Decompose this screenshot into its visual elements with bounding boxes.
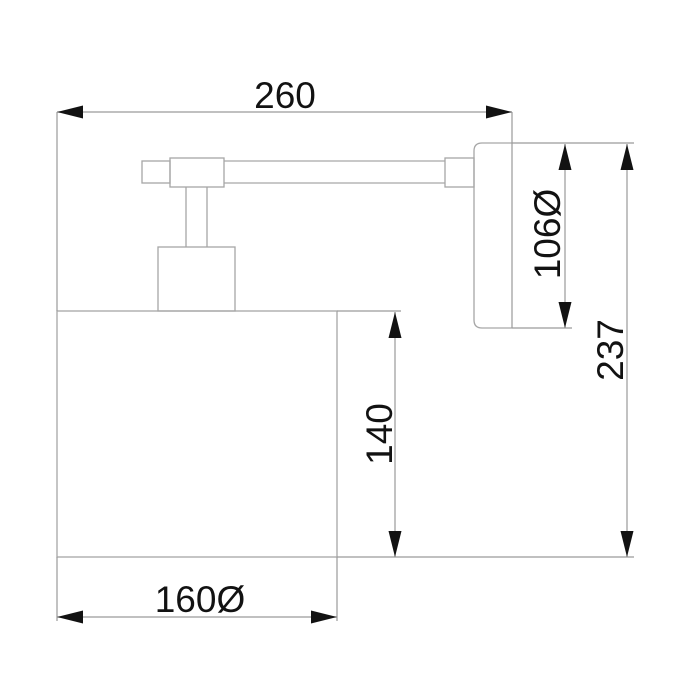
backplate-outline [474, 143, 512, 328]
shade-outline [57, 311, 337, 557]
arrowhead-down-icon [389, 531, 402, 557]
dim-overall-height: 237 [590, 144, 634, 557]
extension-lines [57, 112, 634, 621]
arm-joint-outline [170, 158, 224, 187]
socket-outline [158, 247, 235, 311]
dim-label-106: 106Ø [527, 189, 568, 280]
dim-shade-diameter: 160Ø [57, 579, 337, 624]
dim-label-260: 260 [254, 75, 316, 116]
arrowhead-right-icon [486, 106, 512, 119]
dim-label-160: 160Ø [155, 579, 246, 620]
arrowhead-right-icon [311, 611, 337, 624]
arm-end-cap-outline [142, 161, 170, 183]
lamp-dimension-drawing: 260 106Ø 237 140 160Ø [0, 0, 700, 700]
arrowhead-up-icon [389, 312, 402, 338]
dim-backplate-diameter: 106Ø [527, 144, 572, 328]
arrowhead-up-icon [621, 144, 634, 170]
arrowhead-down-icon [621, 531, 634, 557]
wall-connector-outline [445, 158, 474, 187]
dim-label-237: 237 [590, 319, 631, 381]
arrowhead-up-icon [559, 144, 572, 170]
dim-shade-height: 140 [359, 312, 402, 557]
lamp-outline [57, 143, 512, 557]
arrowhead-down-icon [559, 302, 572, 328]
dim-label-140: 140 [359, 403, 400, 465]
arrowhead-left-icon [57, 106, 83, 119]
arrowhead-left-icon [57, 611, 83, 624]
technical-drawing-svg: 260 106Ø 237 140 160Ø [0, 0, 700, 700]
dim-overall-width: 260 [57, 75, 512, 119]
